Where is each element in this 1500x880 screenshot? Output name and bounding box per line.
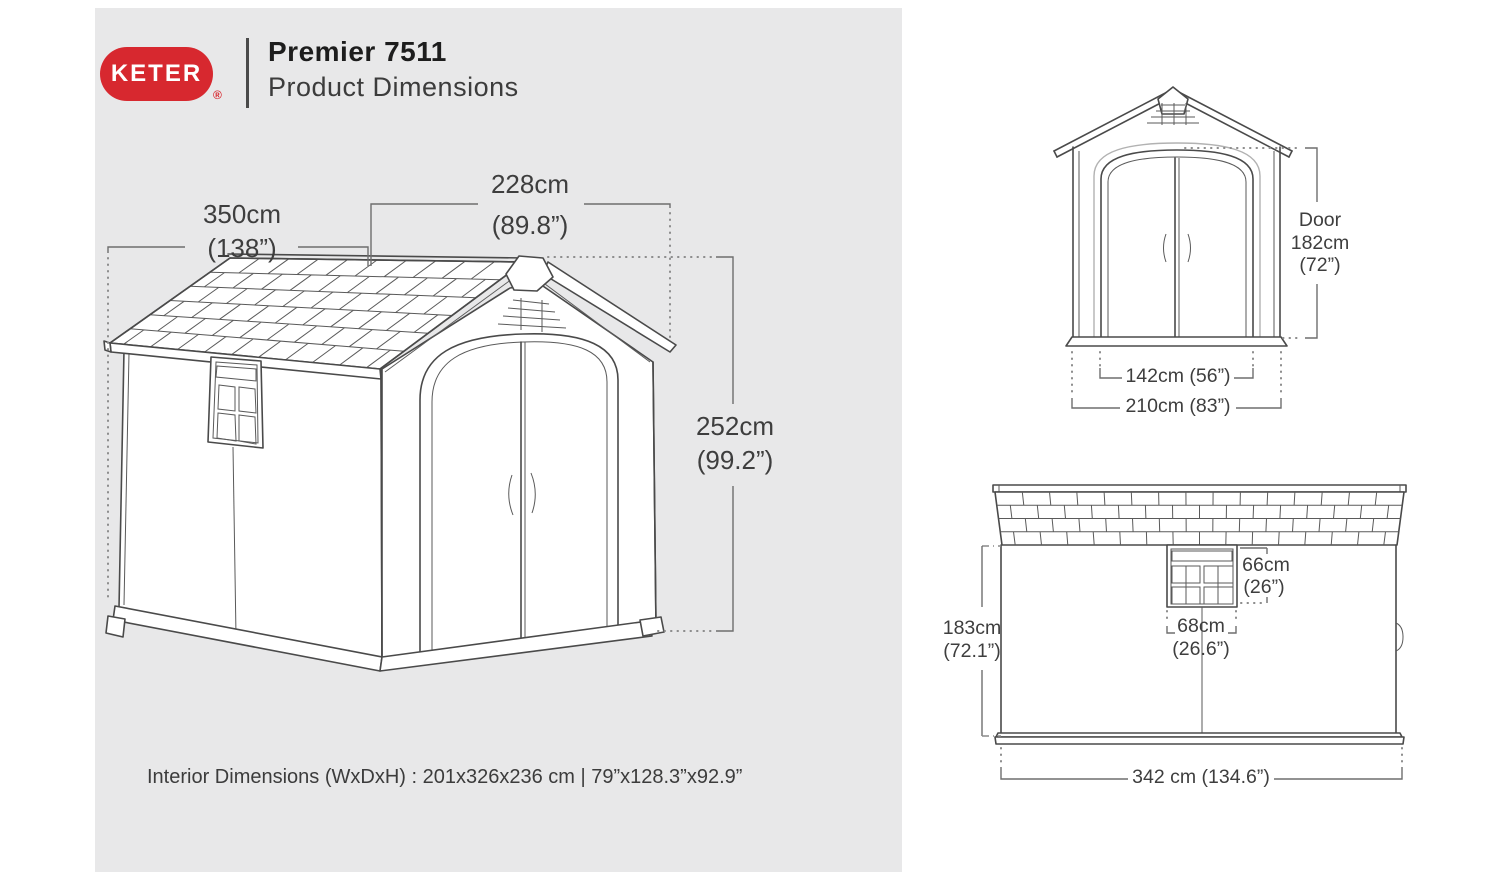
- width-label-cm: 228cm: [491, 169, 569, 199]
- side-handle: [1396, 623, 1403, 651]
- front-shed-drawing: [1054, 87, 1292, 346]
- page-subtitle: Product Dimensions: [268, 72, 519, 103]
- wall-height-in: (72.1”): [943, 640, 1000, 662]
- dimension-wall-height: 183cm (72.1”): [943, 546, 1002, 736]
- dimension-overall-length: 342 cm (134.6”): [1001, 748, 1402, 788]
- window-width-in: (26.6”): [1172, 638, 1229, 660]
- side-view-window: [1167, 545, 1237, 607]
- width-label-in: (89.8”): [492, 210, 569, 240]
- door-height-in: (72”): [1299, 254, 1340, 276]
- window-height-cm: 66cm: [1242, 554, 1290, 576]
- keter-logo-text: KETER: [111, 60, 202, 88]
- front-elevation-view: Door 182cm (72”) 142cm (56”) 210cm (83”): [920, 80, 1460, 430]
- dimension-door-width: 142cm (56”): [1100, 352, 1253, 387]
- dimension-window-width: 68cm (26.6”): [1167, 611, 1236, 660]
- wall-height-cm: 183cm: [943, 617, 1002, 639]
- side-window: [208, 357, 263, 448]
- registered-trademark-icon: ®: [213, 88, 222, 102]
- front-base: [1066, 337, 1287, 346]
- dimension-window-height: 66cm (26”): [1240, 548, 1290, 603]
- overall-width-label: 210cm (83”): [1125, 395, 1230, 417]
- door-label: Door: [1299, 209, 1342, 231]
- shed-3d-drawing: [104, 254, 676, 671]
- door-height-cm: 182cm: [1291, 232, 1350, 254]
- depth-label-in: (138”): [207, 233, 276, 263]
- height-label-in: (99.2”): [697, 445, 774, 475]
- window-height-in: (26”): [1243, 576, 1284, 598]
- front-door-handle-right: [1188, 234, 1191, 262]
- product-title: Premier 7511: [268, 36, 447, 68]
- page: KETER ® Premier 7511 Product Dimensions: [0, 0, 1500, 880]
- door-width-label: 142cm (56”): [1125, 365, 1230, 387]
- overall-length-label: 342 cm (134.6”): [1132, 766, 1270, 788]
- window-width-cm: 68cm: [1177, 615, 1225, 637]
- height-label-cm: 252cm: [696, 411, 774, 441]
- isometric-shed-diagram: 350cm (138”) 228cm (89.8”) 252cm (99.2”): [95, 150, 790, 710]
- depth-label-cm: 350cm: [203, 199, 281, 229]
- keter-logo: KETER: [100, 47, 213, 101]
- front-door-handle-left: [1164, 234, 1167, 262]
- side-elevation-view: 183cm (72.1”) 66cm (26”) 68cm (26.6”): [930, 470, 1470, 810]
- header-divider: [246, 38, 249, 108]
- interior-dimensions-text: Interior Dimensions (WxDxH) : 201x326x23…: [147, 766, 742, 789]
- dimension-door-height: Door 182cm (72”): [1185, 148, 1349, 338]
